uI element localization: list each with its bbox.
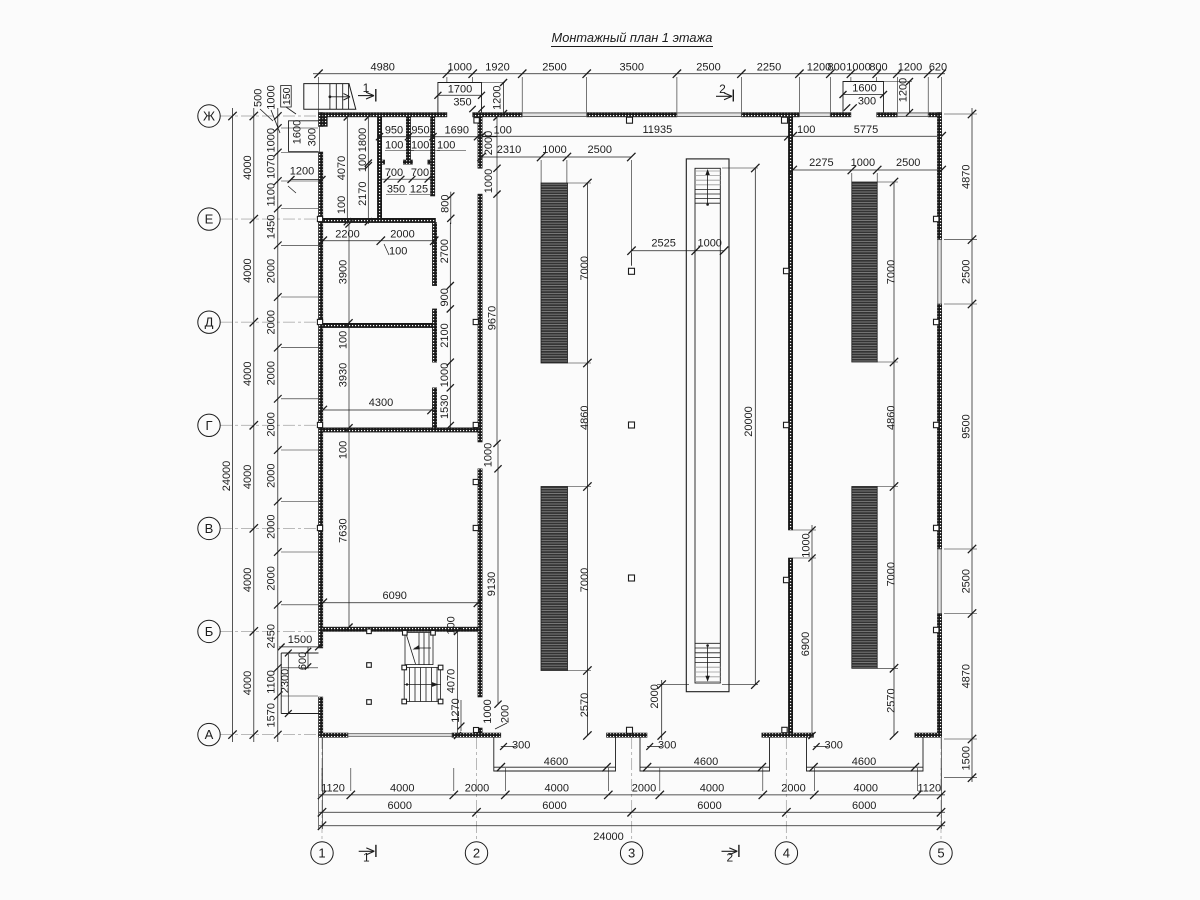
svg-text:300: 300: [307, 128, 319, 146]
svg-text:800: 800: [439, 195, 451, 213]
svg-text:950: 950: [411, 125, 429, 137]
svg-text:200: 200: [499, 705, 511, 723]
svg-text:Монтажный план 1 этажа: Монтажный план 1 этажа: [552, 30, 713, 45]
svg-text:7000: 7000: [885, 562, 897, 586]
svg-text:9130: 9130: [486, 572, 498, 596]
svg-text:3500: 3500: [620, 61, 644, 73]
svg-text:1450: 1450: [266, 215, 278, 239]
svg-text:1000: 1000: [483, 169, 495, 193]
svg-text:950: 950: [385, 125, 403, 137]
svg-text:300: 300: [512, 740, 530, 752]
svg-text:24000: 24000: [593, 831, 624, 843]
svg-text:1100: 1100: [266, 183, 278, 207]
svg-text:800: 800: [828, 61, 846, 73]
svg-text:2250: 2250: [757, 61, 781, 73]
svg-text:1500: 1500: [288, 634, 312, 646]
svg-text:4870: 4870: [961, 165, 973, 189]
svg-text:1270: 1270: [450, 698, 462, 722]
svg-text:7630: 7630: [338, 518, 350, 542]
svg-text:4000: 4000: [390, 783, 414, 795]
svg-text:4600: 4600: [852, 756, 876, 768]
svg-text:1600: 1600: [852, 83, 876, 95]
svg-text:6900: 6900: [800, 632, 812, 656]
svg-text:350: 350: [387, 184, 405, 196]
svg-text:2000: 2000: [266, 259, 278, 283]
svg-text:100: 100: [357, 154, 369, 172]
svg-text:В: В: [205, 521, 214, 536]
svg-text:2000: 2000: [465, 783, 489, 795]
svg-text:1: 1: [318, 846, 325, 861]
svg-text:1000: 1000: [439, 363, 451, 387]
svg-text:3930: 3930: [338, 363, 350, 387]
svg-text:6000: 6000: [697, 800, 721, 812]
svg-text:600: 600: [297, 652, 309, 670]
svg-text:24000: 24000: [221, 461, 233, 492]
svg-text:900: 900: [439, 288, 451, 306]
svg-text:2310: 2310: [497, 144, 521, 156]
svg-text:2500: 2500: [588, 144, 612, 156]
svg-text:4000: 4000: [242, 671, 254, 695]
svg-text:7000: 7000: [885, 260, 897, 284]
svg-text:4980: 4980: [370, 61, 394, 73]
svg-text:100: 100: [338, 331, 350, 349]
svg-text:350: 350: [453, 97, 471, 109]
svg-text:2275: 2275: [809, 157, 833, 169]
svg-text:4000: 4000: [545, 783, 569, 795]
svg-text:150: 150: [281, 87, 293, 105]
svg-text:2700: 2700: [439, 239, 451, 263]
svg-text:Б: Б: [205, 624, 214, 639]
svg-text:125: 125: [410, 184, 428, 196]
svg-text:4000: 4000: [854, 783, 878, 795]
svg-text:1200: 1200: [290, 166, 314, 178]
svg-text:4000: 4000: [242, 465, 254, 489]
svg-text:300: 300: [825, 740, 843, 752]
svg-text:Е: Е: [205, 212, 214, 227]
svg-text:2000: 2000: [266, 514, 278, 538]
svg-text:4000: 4000: [242, 258, 254, 282]
svg-text:2000: 2000: [649, 684, 661, 708]
svg-text:4300: 4300: [369, 397, 393, 409]
svg-text:2000: 2000: [266, 361, 278, 385]
svg-text:2000: 2000: [632, 783, 656, 795]
svg-text:2000: 2000: [266, 463, 278, 487]
svg-text:2: 2: [726, 851, 733, 865]
svg-text:300: 300: [658, 740, 676, 752]
svg-text:1700: 1700: [448, 83, 472, 95]
svg-text:2170: 2170: [357, 181, 369, 205]
svg-text:2500: 2500: [896, 157, 920, 169]
svg-text:4070: 4070: [446, 669, 458, 693]
svg-text:1570: 1570: [266, 703, 278, 727]
svg-text:4860: 4860: [885, 406, 897, 430]
svg-text:1070: 1070: [266, 154, 278, 178]
svg-text:6090: 6090: [382, 590, 406, 602]
svg-text:Г: Г: [205, 418, 212, 433]
svg-text:1800: 1800: [357, 128, 369, 152]
svg-text:11935: 11935: [643, 124, 673, 136]
svg-text:4860: 4860: [579, 406, 591, 430]
svg-text:6000: 6000: [388, 800, 412, 812]
svg-text:2000: 2000: [483, 131, 495, 155]
svg-text:1000: 1000: [697, 237, 721, 249]
svg-text:2000: 2000: [266, 566, 278, 590]
svg-text:2570: 2570: [579, 693, 591, 717]
svg-text:2570: 2570: [885, 688, 897, 712]
svg-text:1000: 1000: [800, 533, 812, 557]
svg-text:1690: 1690: [445, 125, 469, 137]
svg-text:1000: 1000: [448, 61, 472, 73]
svg-text:1: 1: [363, 851, 370, 865]
svg-text:100: 100: [338, 441, 350, 459]
svg-text:300: 300: [858, 96, 876, 108]
svg-text:2500: 2500: [961, 260, 973, 284]
svg-text:2450: 2450: [266, 624, 278, 648]
svg-text:6000: 6000: [542, 800, 566, 812]
svg-text:1000: 1000: [542, 144, 566, 156]
svg-text:20000: 20000: [743, 406, 755, 437]
svg-text:1920: 1920: [485, 61, 509, 73]
svg-text:500: 500: [253, 89, 265, 107]
svg-text:1200: 1200: [898, 78, 910, 102]
svg-text:2000: 2000: [266, 412, 278, 436]
svg-text:3: 3: [628, 846, 635, 861]
svg-text:Ж: Ж: [203, 109, 215, 124]
svg-text:2300: 2300: [279, 669, 291, 693]
svg-text:2000: 2000: [781, 783, 805, 795]
svg-text:2000: 2000: [390, 229, 414, 241]
svg-text:1000: 1000: [482, 699, 494, 723]
svg-text:Д: Д: [205, 315, 214, 330]
svg-text:1000: 1000: [482, 443, 494, 467]
svg-text:2500: 2500: [961, 569, 973, 593]
svg-text:1000: 1000: [846, 61, 870, 73]
svg-text:1500: 1500: [961, 746, 973, 770]
svg-text:9670: 9670: [487, 306, 499, 330]
svg-text:100: 100: [411, 140, 429, 152]
svg-text:100: 100: [494, 125, 512, 137]
svg-text:2200: 2200: [335, 229, 359, 241]
svg-text:6000: 6000: [852, 800, 876, 812]
svg-text:1120: 1120: [321, 783, 345, 795]
svg-text:100: 100: [797, 124, 815, 136]
svg-text:700: 700: [385, 167, 403, 179]
svg-text:4000: 4000: [242, 155, 254, 179]
svg-text:1000: 1000: [851, 157, 875, 169]
svg-text:1200: 1200: [898, 61, 922, 73]
svg-text:100: 100: [389, 246, 407, 258]
svg-text:1200: 1200: [492, 85, 504, 109]
svg-text:5: 5: [937, 846, 944, 861]
svg-text:1000: 1000: [265, 85, 277, 109]
svg-text:700: 700: [411, 167, 429, 179]
svg-text:620: 620: [929, 61, 947, 73]
svg-text:4000: 4000: [242, 362, 254, 386]
svg-text:4870: 4870: [961, 664, 973, 688]
svg-text:100: 100: [385, 140, 403, 152]
svg-text:4070: 4070: [336, 156, 348, 180]
svg-text:5775: 5775: [854, 124, 878, 136]
svg-text:2: 2: [473, 846, 480, 861]
svg-text:100: 100: [445, 616, 457, 634]
svg-text:4600: 4600: [694, 756, 718, 768]
svg-text:А: А: [205, 727, 214, 742]
svg-text:3900: 3900: [338, 260, 350, 284]
svg-text:4: 4: [783, 846, 790, 861]
svg-text:4000: 4000: [242, 568, 254, 592]
svg-text:100: 100: [437, 140, 455, 152]
svg-text:2525: 2525: [651, 237, 675, 249]
svg-text:4600: 4600: [544, 756, 568, 768]
svg-text:2500: 2500: [696, 61, 720, 73]
svg-text:1000: 1000: [266, 128, 278, 152]
svg-text:7000: 7000: [579, 256, 591, 280]
svg-text:1600: 1600: [292, 120, 304, 144]
svg-text:2100: 2100: [439, 323, 451, 347]
svg-text:1100: 1100: [266, 670, 278, 694]
svg-text:2500: 2500: [542, 61, 566, 73]
svg-text:2000: 2000: [266, 310, 278, 334]
svg-text:4000: 4000: [700, 783, 724, 795]
svg-text:100: 100: [336, 196, 348, 214]
svg-text:800: 800: [869, 61, 887, 73]
svg-text:1530: 1530: [439, 395, 451, 419]
svg-text:7000: 7000: [579, 568, 591, 592]
svg-text:1120: 1120: [917, 783, 941, 795]
svg-text:9500: 9500: [961, 414, 973, 438]
